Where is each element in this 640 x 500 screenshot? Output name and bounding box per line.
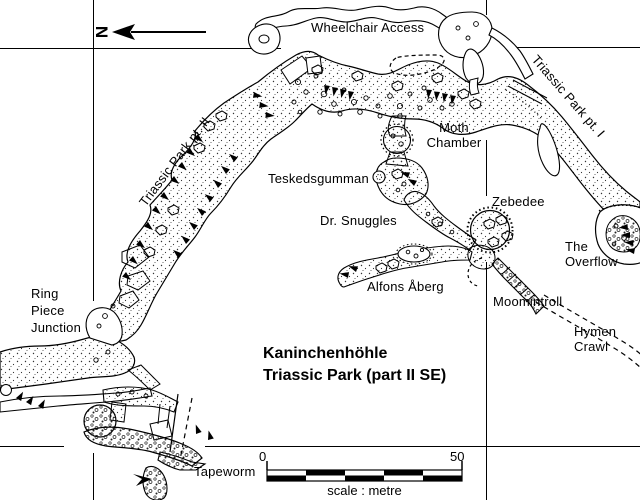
north-label: N bbox=[91, 26, 111, 38]
label-dr-snuggles: Dr. Snuggles bbox=[320, 213, 397, 228]
label-ring-piece-junction: Ring Piece Junction bbox=[31, 285, 91, 336]
label-teskedsgumman: Teskedsgumman bbox=[268, 171, 369, 186]
label-moth-chamber: Moth Chamber bbox=[424, 120, 484, 150]
label-moomintroll: Moomintroll bbox=[493, 294, 562, 309]
map-title-line1: Kaninchenhöhle bbox=[263, 343, 446, 365]
label-tapeworm: Tapeworm bbox=[194, 464, 256, 479]
scale-start-value: 0 bbox=[259, 449, 266, 464]
map-title-line2: Triassic Park (part II SE) bbox=[263, 365, 446, 387]
scale-caption: scale : metre bbox=[267, 483, 462, 498]
map-title: Kaninchenhöhle Triassic Park (part II SE… bbox=[263, 343, 446, 387]
label-the-overflow: The Overflow bbox=[565, 239, 629, 269]
label-wheelchair-access: Wheelchair Access bbox=[311, 20, 424, 35]
label-alfons-aberg: Alfons Åberg bbox=[367, 279, 444, 294]
label-hymen-crawl: Hymen Crawl bbox=[574, 324, 628, 354]
label-zebedee: Zebedee bbox=[492, 194, 545, 209]
cave-survey-map-page: N Wheelchair Access Triassic Park pt. II… bbox=[0, 0, 640, 500]
passage-dr-snuggles bbox=[404, 191, 476, 250]
scale-end-value: 50 bbox=[450, 449, 464, 464]
chamber-moth bbox=[384, 127, 411, 154]
north-arrow bbox=[112, 24, 206, 40]
scale-bar bbox=[267, 461, 462, 481]
